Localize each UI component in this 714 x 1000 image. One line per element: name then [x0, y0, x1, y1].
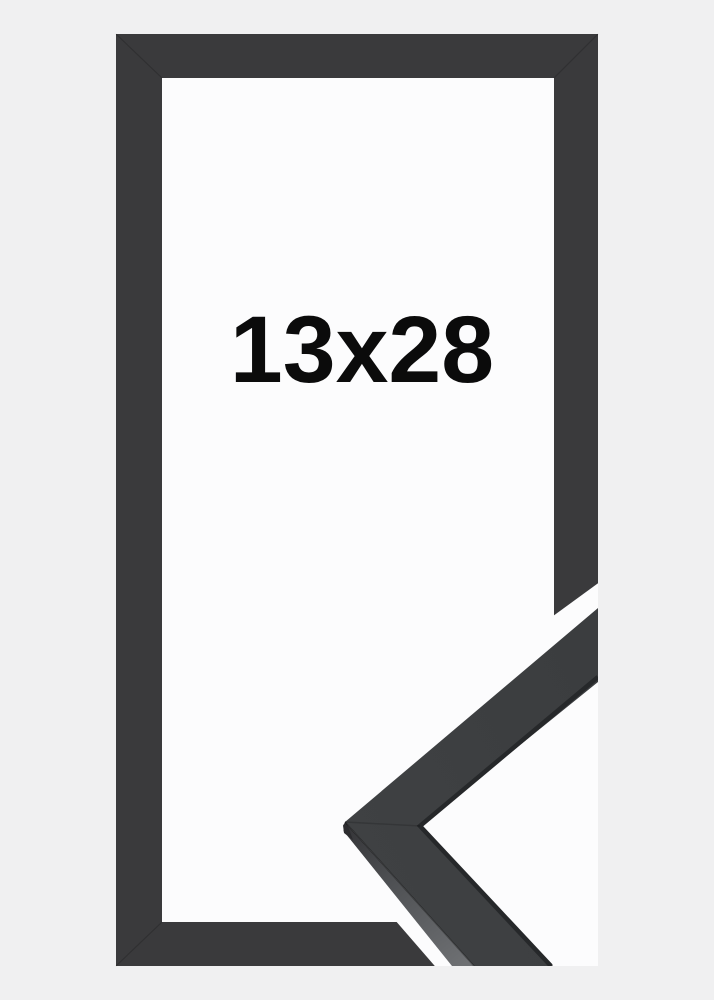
svg-text:13x28: 13x28 — [230, 297, 494, 403]
